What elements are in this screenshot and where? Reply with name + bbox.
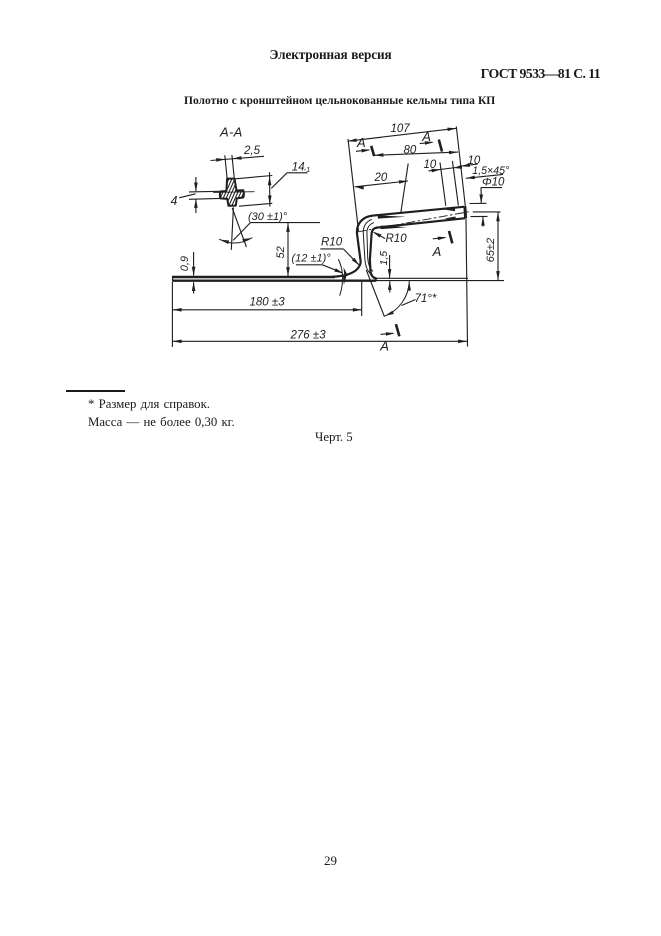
svg-text:Φ10: Φ10: [482, 176, 505, 188]
svg-text:65±2: 65±2: [485, 238, 497, 262]
svg-text:(12 ±1)°: (12 ±1)°: [292, 252, 332, 264]
svg-text:А: А: [379, 339, 389, 354]
svg-text:52: 52: [275, 246, 287, 258]
svg-text:180 ±3: 180 ±3: [250, 296, 286, 308]
svg-text:-1: -1: [304, 165, 311, 174]
svg-text:А: А: [356, 135, 366, 150]
svg-text:А: А: [432, 244, 442, 259]
svg-text:R10: R10: [386, 233, 408, 245]
svg-text:4: 4: [171, 194, 178, 208]
svg-text:20: 20: [374, 172, 388, 184]
svg-text:276 ±3: 276 ±3: [290, 329, 327, 341]
svg-text:1,5×45°: 1,5×45°: [472, 165, 509, 177]
svg-text:А-А: А-А: [219, 124, 243, 139]
svg-text:71°*: 71°*: [415, 293, 437, 305]
svg-text:2,5: 2,5: [243, 145, 261, 157]
svg-text:80: 80: [404, 144, 417, 156]
svg-text:(30 ±1)°: (30 ±1)°: [248, 211, 288, 223]
svg-text:107: 107: [391, 123, 411, 135]
svg-text:R10: R10: [321, 237, 343, 249]
svg-text:0,9: 0,9: [179, 256, 191, 271]
svg-text:10: 10: [424, 159, 437, 171]
svg-text:1,5: 1,5: [378, 251, 390, 266]
